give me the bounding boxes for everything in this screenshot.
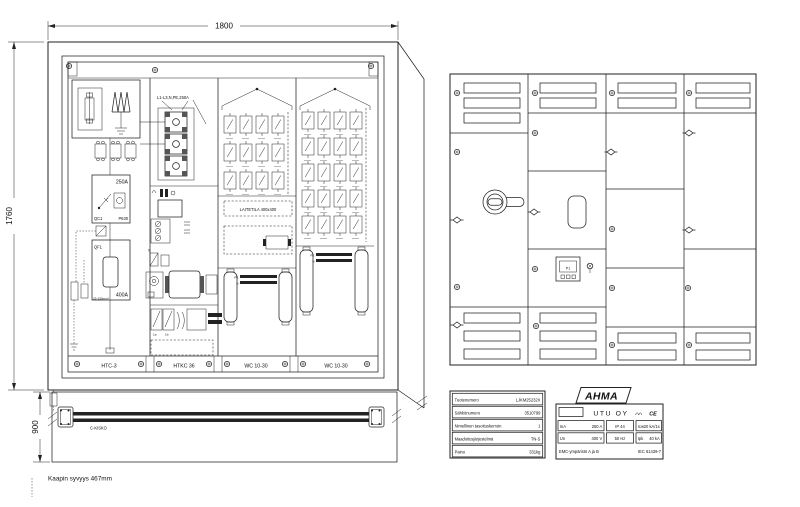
dimension-height: 1760	[5, 42, 44, 390]
table-row: MaadoitusjärjestelmäTN-S	[452, 432, 542, 444]
vent-grille	[618, 350, 676, 360]
breaker-symbol	[240, 113, 252, 139]
feed-label: L1-L3,N,PE,250A	[157, 95, 189, 100]
latch-icon	[683, 227, 696, 233]
breaker-symbol	[334, 187, 346, 213]
vent-grille	[464, 331, 520, 341]
breaker-symbol	[272, 141, 284, 167]
ce-mark: CE	[649, 412, 657, 418]
section-label-2: HTKC 36	[173, 364, 194, 370]
breaker-symbol	[103, 257, 118, 287]
rating-cell: IP 44	[607, 421, 634, 431]
rating-cell-value: 20 kA/1s	[644, 424, 660, 429]
switch-fuse-row	[95, 141, 136, 161]
screw-icon	[454, 90, 459, 95]
screw-icon	[609, 342, 614, 347]
table-row-value: TN-S	[531, 437, 541, 442]
main-switch-box: 250A QC1 P630	[92, 175, 130, 223]
screw-icon	[74, 361, 79, 366]
screw-icon	[532, 90, 537, 95]
breaker-symbol	[240, 141, 252, 167]
company-name: UTU OY	[593, 410, 628, 417]
breaker-symbol	[302, 213, 314, 239]
vent-grille	[464, 349, 520, 359]
utu-logo-mark	[636, 413, 642, 415]
aux-device	[81, 284, 88, 298]
table-row-label: Paino	[455, 450, 466, 455]
pe-busbar	[316, 253, 352, 256]
label-strip-dividers	[146, 356, 298, 372]
plate-footer-left: EMC-ympäristö A ja B	[559, 449, 599, 454]
pe-busbar	[240, 275, 277, 278]
fuse-switch-symbol	[165, 134, 187, 154]
rating-cell: Icw20 kA/1s	[636, 421, 662, 431]
section-feeders-1: LAITETILA 400x400 PE N	[218, 88, 296, 325]
vent-grille	[540, 349, 596, 359]
cabinet-layout-drawing: 1800 1760 900 HTC-3 HTKC 36 WC 10-30 WC …	[5, 21, 427, 497]
table-row-value: 331kg	[529, 450, 541, 455]
indicator-lamp	[587, 263, 593, 273]
breaker-symbol	[302, 187, 314, 213]
screw-icon	[300, 361, 305, 366]
fuse-switch-symbol	[165, 112, 187, 132]
dim-width-label: 1800	[215, 22, 233, 31]
breaker-id: QF1	[94, 245, 103, 250]
breaker-symbol	[350, 135, 362, 161]
breaker-symbol	[350, 109, 362, 135]
equipment-space-label: LAITETILA 400x400	[240, 207, 277, 212]
corner-plate	[369, 62, 378, 76]
screw-icon	[609, 90, 614, 95]
screw-icon	[685, 285, 690, 290]
table-row: Nimellinen tasoituskerroin1	[452, 419, 542, 431]
switch-rating: 250A	[116, 180, 129, 186]
n-busbar	[316, 259, 352, 262]
rating-cell-key: Ipk	[638, 436, 644, 441]
earth-symbol	[115, 112, 127, 134]
breaker-symbol	[350, 161, 362, 187]
breaker-grids	[224, 108, 366, 242]
plate-footer-right: IEC 61439-7	[638, 449, 662, 454]
rating-cell-value: 40 kA	[649, 436, 660, 441]
vent-grille	[696, 333, 750, 343]
corner-plate	[68, 62, 77, 76]
screw-icon	[532, 130, 537, 135]
section-label-3: WC 10-30	[244, 364, 267, 370]
screw-icon	[282, 361, 287, 366]
switch-type: P630	[118, 216, 128, 221]
latch-icon	[451, 322, 464, 328]
screw-icon	[224, 361, 229, 366]
vent-grille	[540, 313, 596, 323]
meter-label: P1	[566, 266, 570, 270]
breaker-symbol	[224, 169, 236, 195]
breaker-symbol	[350, 187, 362, 213]
breaker-symbol	[334, 161, 346, 187]
rating-cell-value: IP 44	[615, 424, 625, 429]
breaker-symbol	[256, 169, 268, 195]
product-data-table: TuotenumeroLJKM25232XSähkönumero3510799N…	[450, 391, 545, 458]
aux-device	[71, 282, 78, 300]
rating-cell-value: 50 Hz	[615, 436, 626, 441]
perspective-flap	[398, 42, 424, 408]
busbar-support	[279, 272, 292, 322]
rating-cell-key: InA	[560, 424, 566, 429]
front-column-dividers	[528, 74, 684, 365]
contactor-cylinder	[169, 271, 200, 298]
coil-symbol	[112, 92, 130, 112]
breaker-symbol	[302, 109, 314, 135]
breaker-symbol	[318, 213, 330, 239]
breaker-symbol	[318, 109, 330, 135]
breaker-symbol	[272, 113, 284, 139]
vent-grille	[618, 333, 676, 343]
table-row: Sähkönumero3510799	[452, 406, 542, 418]
contactor-block	[158, 200, 182, 217]
breaker-symbol	[224, 141, 236, 167]
breaker-symbol	[302, 135, 314, 161]
section-feeders-2: PE N	[296, 88, 374, 315]
rating-cell-key: Un	[560, 436, 566, 441]
rating-cell: Un400 V	[558, 433, 604, 443]
busbar-piece	[266, 236, 288, 249]
dim-base-label: 900	[31, 420, 40, 434]
front-outline	[450, 74, 756, 365]
vent-grille	[696, 350, 750, 360]
breaker-symbol	[224, 113, 236, 139]
screw-icon	[454, 284, 459, 289]
table-row-value: 1	[538, 424, 541, 429]
dimension-base: 900	[31, 392, 50, 462]
door-latches	[451, 130, 696, 328]
breaker-symbol	[240, 169, 252, 195]
panel-meter: P1	[556, 257, 580, 281]
strip-label: 1a	[153, 333, 157, 337]
busbar-support	[355, 250, 368, 312]
table-row: Paino331kg	[452, 445, 542, 457]
vent-grille	[618, 98, 676, 108]
screw-icon	[152, 67, 157, 72]
serial-box	[559, 408, 583, 417]
vent-grille	[464, 98, 520, 108]
n-label: N	[312, 260, 314, 264]
vent-grille	[464, 113, 520, 123]
breaker-symbol	[318, 161, 330, 187]
vent-grille	[618, 83, 676, 93]
door-frame	[62, 56, 384, 378]
latch-icon	[451, 217, 464, 223]
table-row-label: Tuotenumero	[455, 398, 480, 403]
latch-icon	[528, 209, 541, 215]
breaker-symbol	[272, 169, 284, 195]
main-breaker-box: QF1 400A 25-150mm²	[92, 240, 130, 301]
screw-icon	[532, 266, 537, 271]
breaker-symbol	[318, 135, 330, 161]
table-row-value: LJKM25232X	[516, 398, 541, 403]
door-handle	[568, 196, 586, 228]
busbar-support	[300, 250, 313, 312]
cable-note: 25-150mm²	[93, 297, 109, 301]
table-row-label: Sähkönumero	[455, 411, 481, 416]
modular-group	[187, 309, 206, 330]
latch-icon	[683, 130, 696, 136]
table-row-value: 3510799	[524, 411, 541, 416]
breaker-symbol	[256, 113, 268, 139]
vent-grille	[540, 98, 596, 108]
rating-cell: Ipk40 kA	[636, 433, 662, 443]
rotary-handle	[483, 190, 524, 214]
n-label: N	[236, 282, 238, 286]
rating-cell: InA250 A	[558, 421, 604, 431]
screw-icon	[609, 226, 614, 231]
dim-height-label: 1760	[5, 207, 14, 225]
screw-icon	[533, 323, 538, 328]
vent-grille	[696, 98, 750, 108]
screw-icon	[138, 361, 143, 366]
vent-grille	[464, 83, 520, 93]
breaker-symbol	[334, 109, 346, 135]
pe-label: PE	[310, 254, 314, 258]
c-rail	[73, 412, 369, 416]
screw-icon	[686, 90, 691, 95]
section-control: L1-L3,N,PE,250A S 1a	[146, 95, 222, 355]
screw-icon	[364, 361, 369, 366]
breaker-symbol	[350, 213, 362, 239]
breaker-symbol	[334, 213, 346, 239]
n-busbar	[240, 281, 277, 284]
section-label-1: HTC-3	[101, 364, 116, 370]
screws	[66, 63, 691, 366]
engineering-drawing-sheet: 1800 1760 900 HTC-3 HTKC 36 WC 10-30 WC …	[0, 0, 800, 507]
strip-label: 1b	[165, 333, 169, 337]
switch-id: QC1	[94, 216, 103, 221]
dimension-width: 1800	[48, 21, 398, 40]
screw-icon	[454, 149, 459, 154]
drawing-canvas: 1800 1760 900 HTC-3 HTKC 36 WC 10-30 WC …	[0, 0, 800, 507]
break-mark	[417, 396, 427, 410]
breaker-symbol	[334, 135, 346, 161]
rail-label: C-KISKO	[90, 426, 107, 431]
busbar-support	[224, 272, 237, 322]
screw-icon	[66, 63, 71, 68]
table-row-label: Maadoitusjärjestelmä	[455, 437, 494, 442]
table-row-label: Nimellinen tasoituskerroin	[455, 424, 503, 429]
fuse-switch-symbol	[165, 156, 187, 176]
aux-label: S	[148, 249, 151, 253]
pe-label: PE	[234, 276, 238, 280]
vent-grille	[540, 83, 596, 93]
rating-plate: AHMA UTU OY CE InA250 AIP 44Icw20 kA/1sU…	[556, 388, 663, 460]
brand-logo: AHMA	[584, 391, 618, 403]
depth-note: Kaapin syvyys 467mm	[48, 476, 112, 483]
table-row: TuotenumeroLJKM25232X	[452, 393, 542, 405]
screw-icon	[206, 361, 211, 366]
breaker-symbol	[302, 161, 314, 187]
vent-grille	[464, 313, 520, 323]
c-rail	[73, 419, 369, 423]
cabinet-front-view: P1	[450, 74, 756, 365]
breaker-symbol	[256, 141, 268, 167]
vent-grille	[540, 331, 596, 341]
rating-cell-value: 400 V	[591, 436, 602, 441]
vent-grille	[696, 83, 750, 93]
breaker-symbol	[318, 187, 330, 213]
breaker-rating: 400A	[116, 293, 129, 299]
screw-icon	[156, 361, 161, 366]
screw-icon	[686, 342, 691, 347]
mounting-frame	[68, 62, 378, 372]
rating-cell: 50 Hz	[607, 433, 634, 443]
rating-cell-value: 250 A	[592, 424, 603, 429]
section-label-4: WC 10-30	[324, 364, 347, 370]
latch-icon	[605, 149, 618, 155]
vent-grilles	[464, 83, 750, 360]
screw-icon	[609, 285, 614, 290]
